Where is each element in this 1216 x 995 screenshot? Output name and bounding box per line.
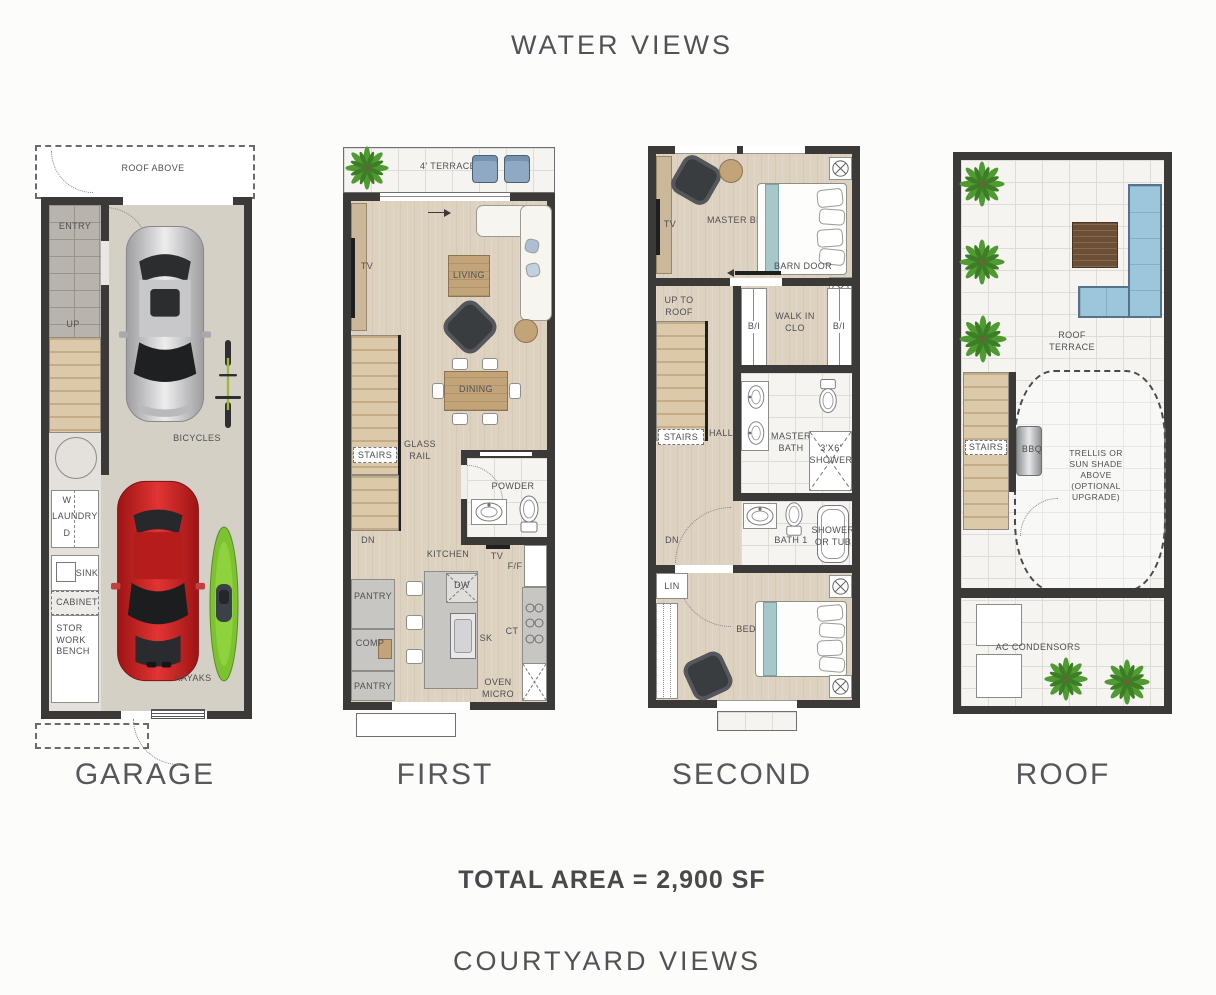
roof-sectional (1128, 184, 1162, 318)
up-label: UP (66, 319, 79, 331)
bi-left-label: B/I (747, 321, 761, 333)
entry-arrow-shaft (428, 212, 444, 213)
up-to-roof-label: UP TO ROOF (664, 295, 693, 318)
powder-toilet-icon (517, 493, 541, 535)
pillow (819, 622, 846, 639)
roof-palm-icon (958, 238, 1006, 286)
bath1-sink-icon (745, 505, 775, 527)
entry-arrow-head (444, 209, 451, 217)
barn-door-arrow (727, 269, 734, 277)
closet-bottom-wall (733, 365, 853, 373)
bath-left-wall (733, 373, 741, 501)
nightstand-fan-icon (829, 575, 852, 598)
total-area-text: TOTAL AREA = 2,900 SF (458, 866, 765, 895)
bath1-toilet-icon (783, 501, 805, 537)
second-stoop (717, 711, 797, 731)
driveway-dashed-area (35, 723, 149, 749)
barn-door-opening (730, 278, 782, 286)
garage-door-panel (151, 709, 205, 719)
garage-floor-title: GARAGE (75, 758, 215, 792)
pillow (816, 604, 843, 622)
terrace-chair (472, 155, 498, 183)
first-bottom-opening (392, 702, 470, 710)
master-tv-icon (656, 199, 660, 255)
nightstand-fan-icon (829, 675, 852, 698)
tv-label: TV (361, 261, 373, 273)
second-stairs-label: STAIRS (664, 432, 698, 444)
kitchen-tv-label: TV (491, 551, 503, 563)
second-bottom-opening (717, 700, 797, 708)
bedroom1-closet (656, 603, 678, 699)
dn-label: DN (361, 535, 375, 547)
ct-label: CT (506, 626, 519, 638)
walk-in-clo-label: WALK IN CLO (775, 311, 814, 334)
closet-slider-line (670, 603, 672, 699)
bicycle-icon (213, 337, 243, 431)
pillow (816, 188, 844, 209)
kitchen-label: KITCHEN (427, 549, 469, 561)
glass-rail-label: GLASS RAIL (404, 439, 436, 462)
island-stool (406, 649, 423, 664)
terrace-slider-opening (380, 193, 510, 201)
island-stool (406, 581, 423, 596)
slider-track-line (380, 196, 510, 197)
pillow (817, 639, 844, 656)
cooktop-burners (524, 601, 545, 647)
second-floor-plan: TV MASTER BEDROOM BARN DOOR UP TO ROOF S… (645, 143, 863, 731)
entry-stoop (356, 713, 456, 737)
master-tv-label: TV (664, 219, 676, 231)
nightstand-fan-icon (829, 157, 852, 180)
pantry-cabinet (351, 579, 395, 629)
second-stairs-up (656, 321, 706, 441)
roof-sectional (1078, 286, 1130, 318)
shower36-label: 3'X6' SHOWER (810, 443, 853, 466)
roof-stairs-label: STAIRS (969, 442, 1003, 454)
dining-chair (452, 413, 468, 425)
corridor-door-opening (101, 241, 109, 285)
silver-car-icon (119, 221, 211, 427)
stor-work-bench-label: STOR WORK BENCH (56, 623, 90, 658)
cabinet-label: CABINET (56, 597, 98, 609)
kitchen-tv-icon (486, 545, 510, 549)
barn-door-label: BARN DOOR (774, 261, 832, 273)
lin-label: LIN (664, 581, 679, 593)
roof-terrace-label: ROOF TERRACE (1049, 330, 1095, 353)
kayak-icon (207, 521, 241, 687)
entry-label: ENTRY (59, 221, 91, 233)
dw-label: DW (454, 580, 470, 592)
dining-chair (509, 383, 521, 399)
living-label: LIVING (453, 270, 485, 282)
bath1-label: BATH 1 (774, 535, 807, 547)
pillow (816, 228, 843, 248)
water-heater-circle (55, 437, 97, 479)
master-bath-label: MASTER BATH (771, 431, 811, 454)
first-floor-title: FIRST (397, 758, 494, 792)
terrace-plant-icon (344, 145, 390, 191)
island-stool (406, 615, 423, 630)
master-toilet-icon (817, 377, 839, 415)
stair-wall (1009, 372, 1016, 492)
powder-wall-niche (480, 452, 532, 456)
bi-right-label: B/I (832, 321, 846, 333)
shower-or-tub-label: SHOWER OR TUB (812, 525, 855, 548)
garage-sink (56, 562, 76, 582)
side-table (514, 319, 538, 343)
oven-micro-label: OVEN MICRO (482, 677, 514, 700)
garage-top-opening (123, 197, 233, 205)
hall-label: HALL (709, 428, 733, 440)
ac-condensor-unit (976, 604, 1022, 646)
dining-chair (452, 358, 468, 370)
closet-slider-line (663, 603, 665, 699)
sk-label: SK (480, 633, 493, 645)
roof-above-label: ROOF ABOVE (121, 163, 184, 175)
pillow (818, 208, 845, 226)
master-sink-icon (744, 384, 768, 410)
roof-palm-icon (1042, 656, 1090, 702)
ac-condensor-unit (976, 654, 1022, 698)
powder-bottom-wall (461, 537, 552, 545)
ac-condensors-label: AC CONDENSORS (996, 642, 1081, 654)
fridge-freezer (524, 545, 547, 587)
red-car-icon (111, 477, 205, 685)
powder-sink-icon (474, 501, 504, 523)
dining-label: DINING (459, 384, 493, 396)
roof-palm-icon (1102, 658, 1152, 706)
second-floor-title: SECOND (672, 758, 812, 792)
dining-chair (432, 383, 444, 399)
master-sink-icon (744, 420, 768, 446)
window-opening (675, 146, 737, 154)
water-views-title: WATER VIEWS (511, 30, 733, 61)
powder-label: POWDER (492, 481, 535, 493)
oven-x-mark (522, 663, 547, 701)
bath-divider-wall (733, 493, 853, 501)
dining-chair (482, 413, 498, 425)
pantry2-label: PANTRY (354, 681, 392, 693)
terrace-label: 4' TERRACE (420, 161, 476, 173)
bicycles-label: BICYCLES (173, 433, 221, 445)
terrace-chair (504, 155, 530, 183)
dryer-label: D (64, 528, 71, 540)
floor-plan-sheet: { "header": { "top_title": "WATER VIEWS"… (0, 0, 1216, 995)
tv-icon (351, 238, 355, 318)
comp-label: COMP (356, 638, 385, 650)
roof-table (1072, 222, 1118, 268)
closet-left-wall (733, 286, 741, 373)
stair-rail-line (705, 321, 708, 441)
first-floor-plan: 4' TERRACE TV LIVING DINING STAIRS GLASS… (340, 143, 558, 739)
roof-mid-wall (953, 588, 1172, 598)
courtyard-views-title: COURTYARD VIEWS (453, 946, 761, 977)
island-sink-basin (454, 619, 472, 653)
stairs-label: STAIRS (358, 450, 392, 462)
dining-chair (482, 358, 498, 370)
ff-label: F/F (508, 561, 523, 573)
laundry-label: LAUNDRY (52, 511, 98, 523)
washer-label: W (63, 495, 72, 507)
master-side-table (719, 159, 743, 183)
kayaks-label: KAYAKS (174, 673, 211, 685)
roof-palm-icon (958, 314, 1008, 364)
sink-label: SINK (76, 568, 99, 580)
roof-plan: ROOF TERRACE TRELLIS OR SUN SHADE ABOVE … (950, 148, 1175, 718)
first-stairs-down (351, 475, 399, 531)
garage-plan: ROOF ABOVE ENTRY UP W LAUNDRY D SINK CAB… (35, 145, 255, 746)
bbq-label: BBQ (1022, 444, 1042, 456)
roof-floor-title: ROOF (1016, 758, 1111, 792)
bedroom1-bed-runner (763, 602, 777, 676)
pillow (818, 656, 845, 673)
roof-palm-icon (958, 160, 1006, 208)
trellis-label: TRELLIS OR SUN SHADE ABOVE (OPTIONAL UPG… (1057, 448, 1136, 503)
pantry1-label: PANTRY (354, 591, 392, 603)
garage-stairs (49, 337, 101, 433)
bedroom1-door-opening (675, 565, 733, 573)
window-opening (743, 146, 805, 154)
